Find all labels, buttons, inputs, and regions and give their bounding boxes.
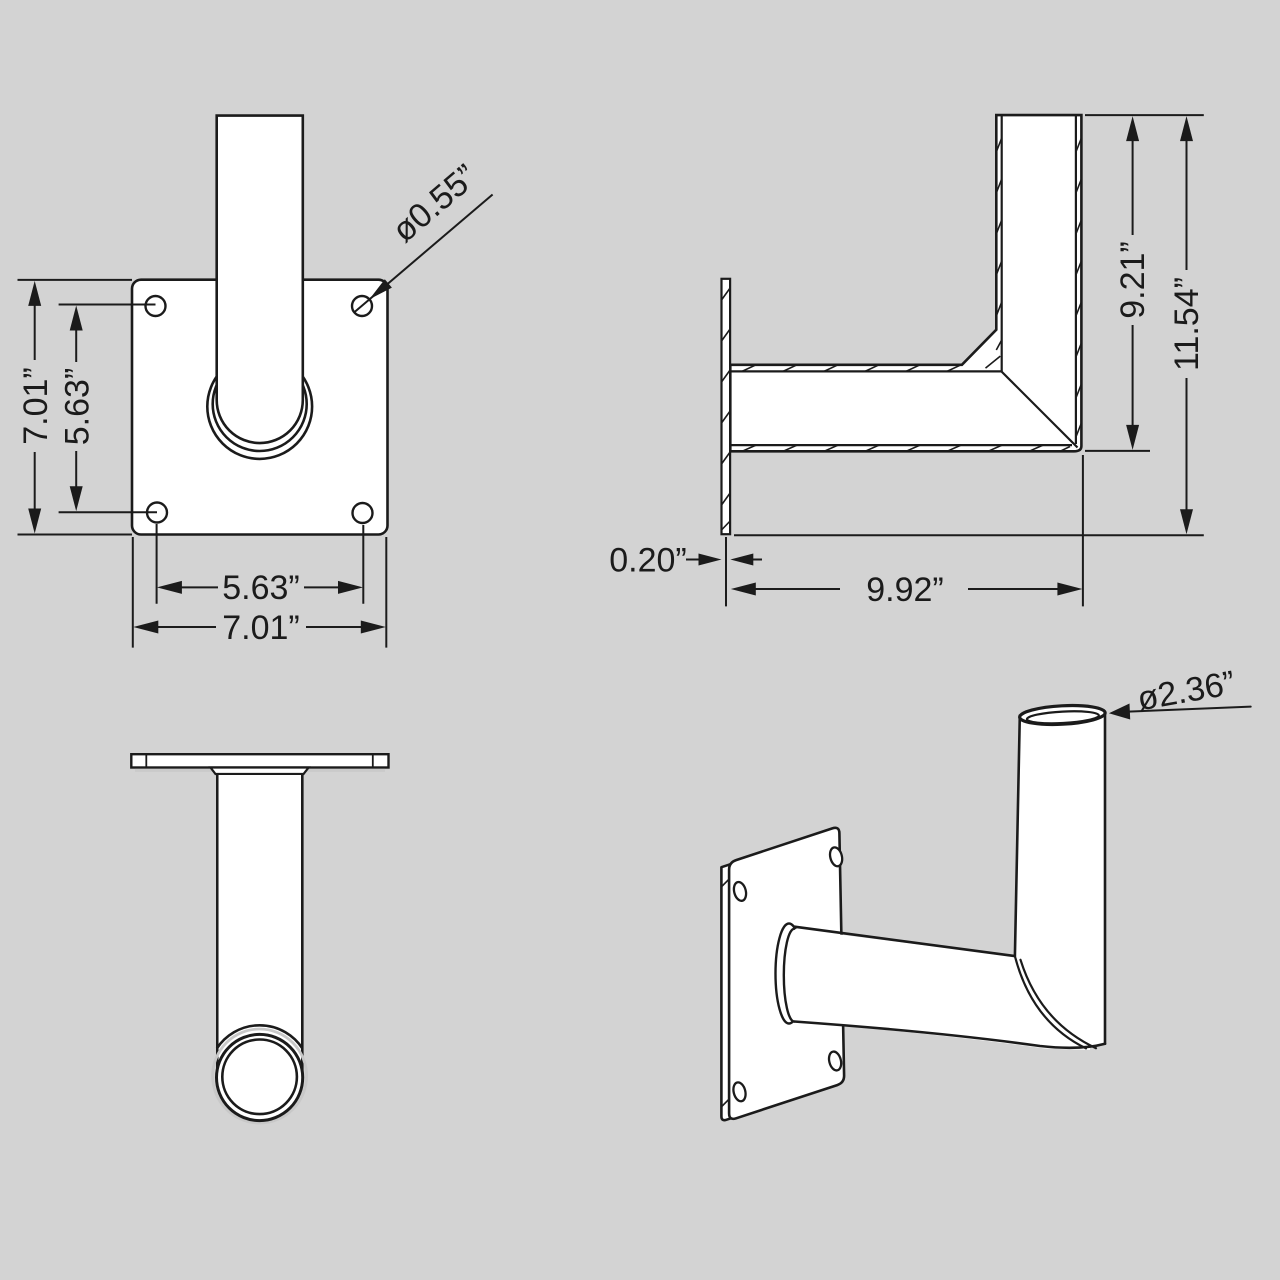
- svg-text:5.63”: 5.63”: [222, 569, 300, 607]
- svg-text:7.01”: 7.01”: [222, 609, 300, 647]
- svg-text:5.63”: 5.63”: [59, 368, 97, 446]
- svg-text:9.92”: 9.92”: [866, 571, 944, 609]
- svg-text:0.20”: 0.20”: [609, 542, 687, 580]
- svg-text:7.01”: 7.01”: [17, 367, 55, 445]
- svg-text:11.54”: 11.54”: [1168, 277, 1206, 371]
- svg-text:9.21”: 9.21”: [1114, 241, 1152, 319]
